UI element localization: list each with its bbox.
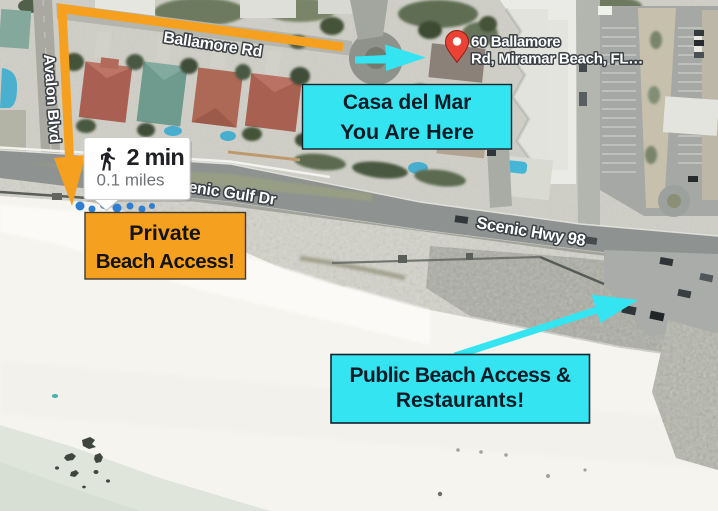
svg-text:Beach Access!: Beach Access! <box>96 250 235 273</box>
svg-text:You Are Here: You Are Here <box>340 120 474 144</box>
svg-text:Rd, Miramar Beach, FL…: Rd, Miramar Beach, FL… <box>471 51 643 68</box>
svg-text:Restaurants!: Restaurants! <box>396 389 524 412</box>
svg-text:Private: Private <box>129 221 201 245</box>
svg-text:0.1 miles: 0.1 miles <box>97 171 165 190</box>
svg-text:Public Beach Access &: Public Beach Access & <box>350 364 571 387</box>
svg-text:60 Ballamore: 60 Ballamore <box>471 34 560 51</box>
svg-text:Casa del Mar: Casa del Mar <box>343 91 471 114</box>
svg-text:2 min: 2 min <box>127 144 184 170</box>
